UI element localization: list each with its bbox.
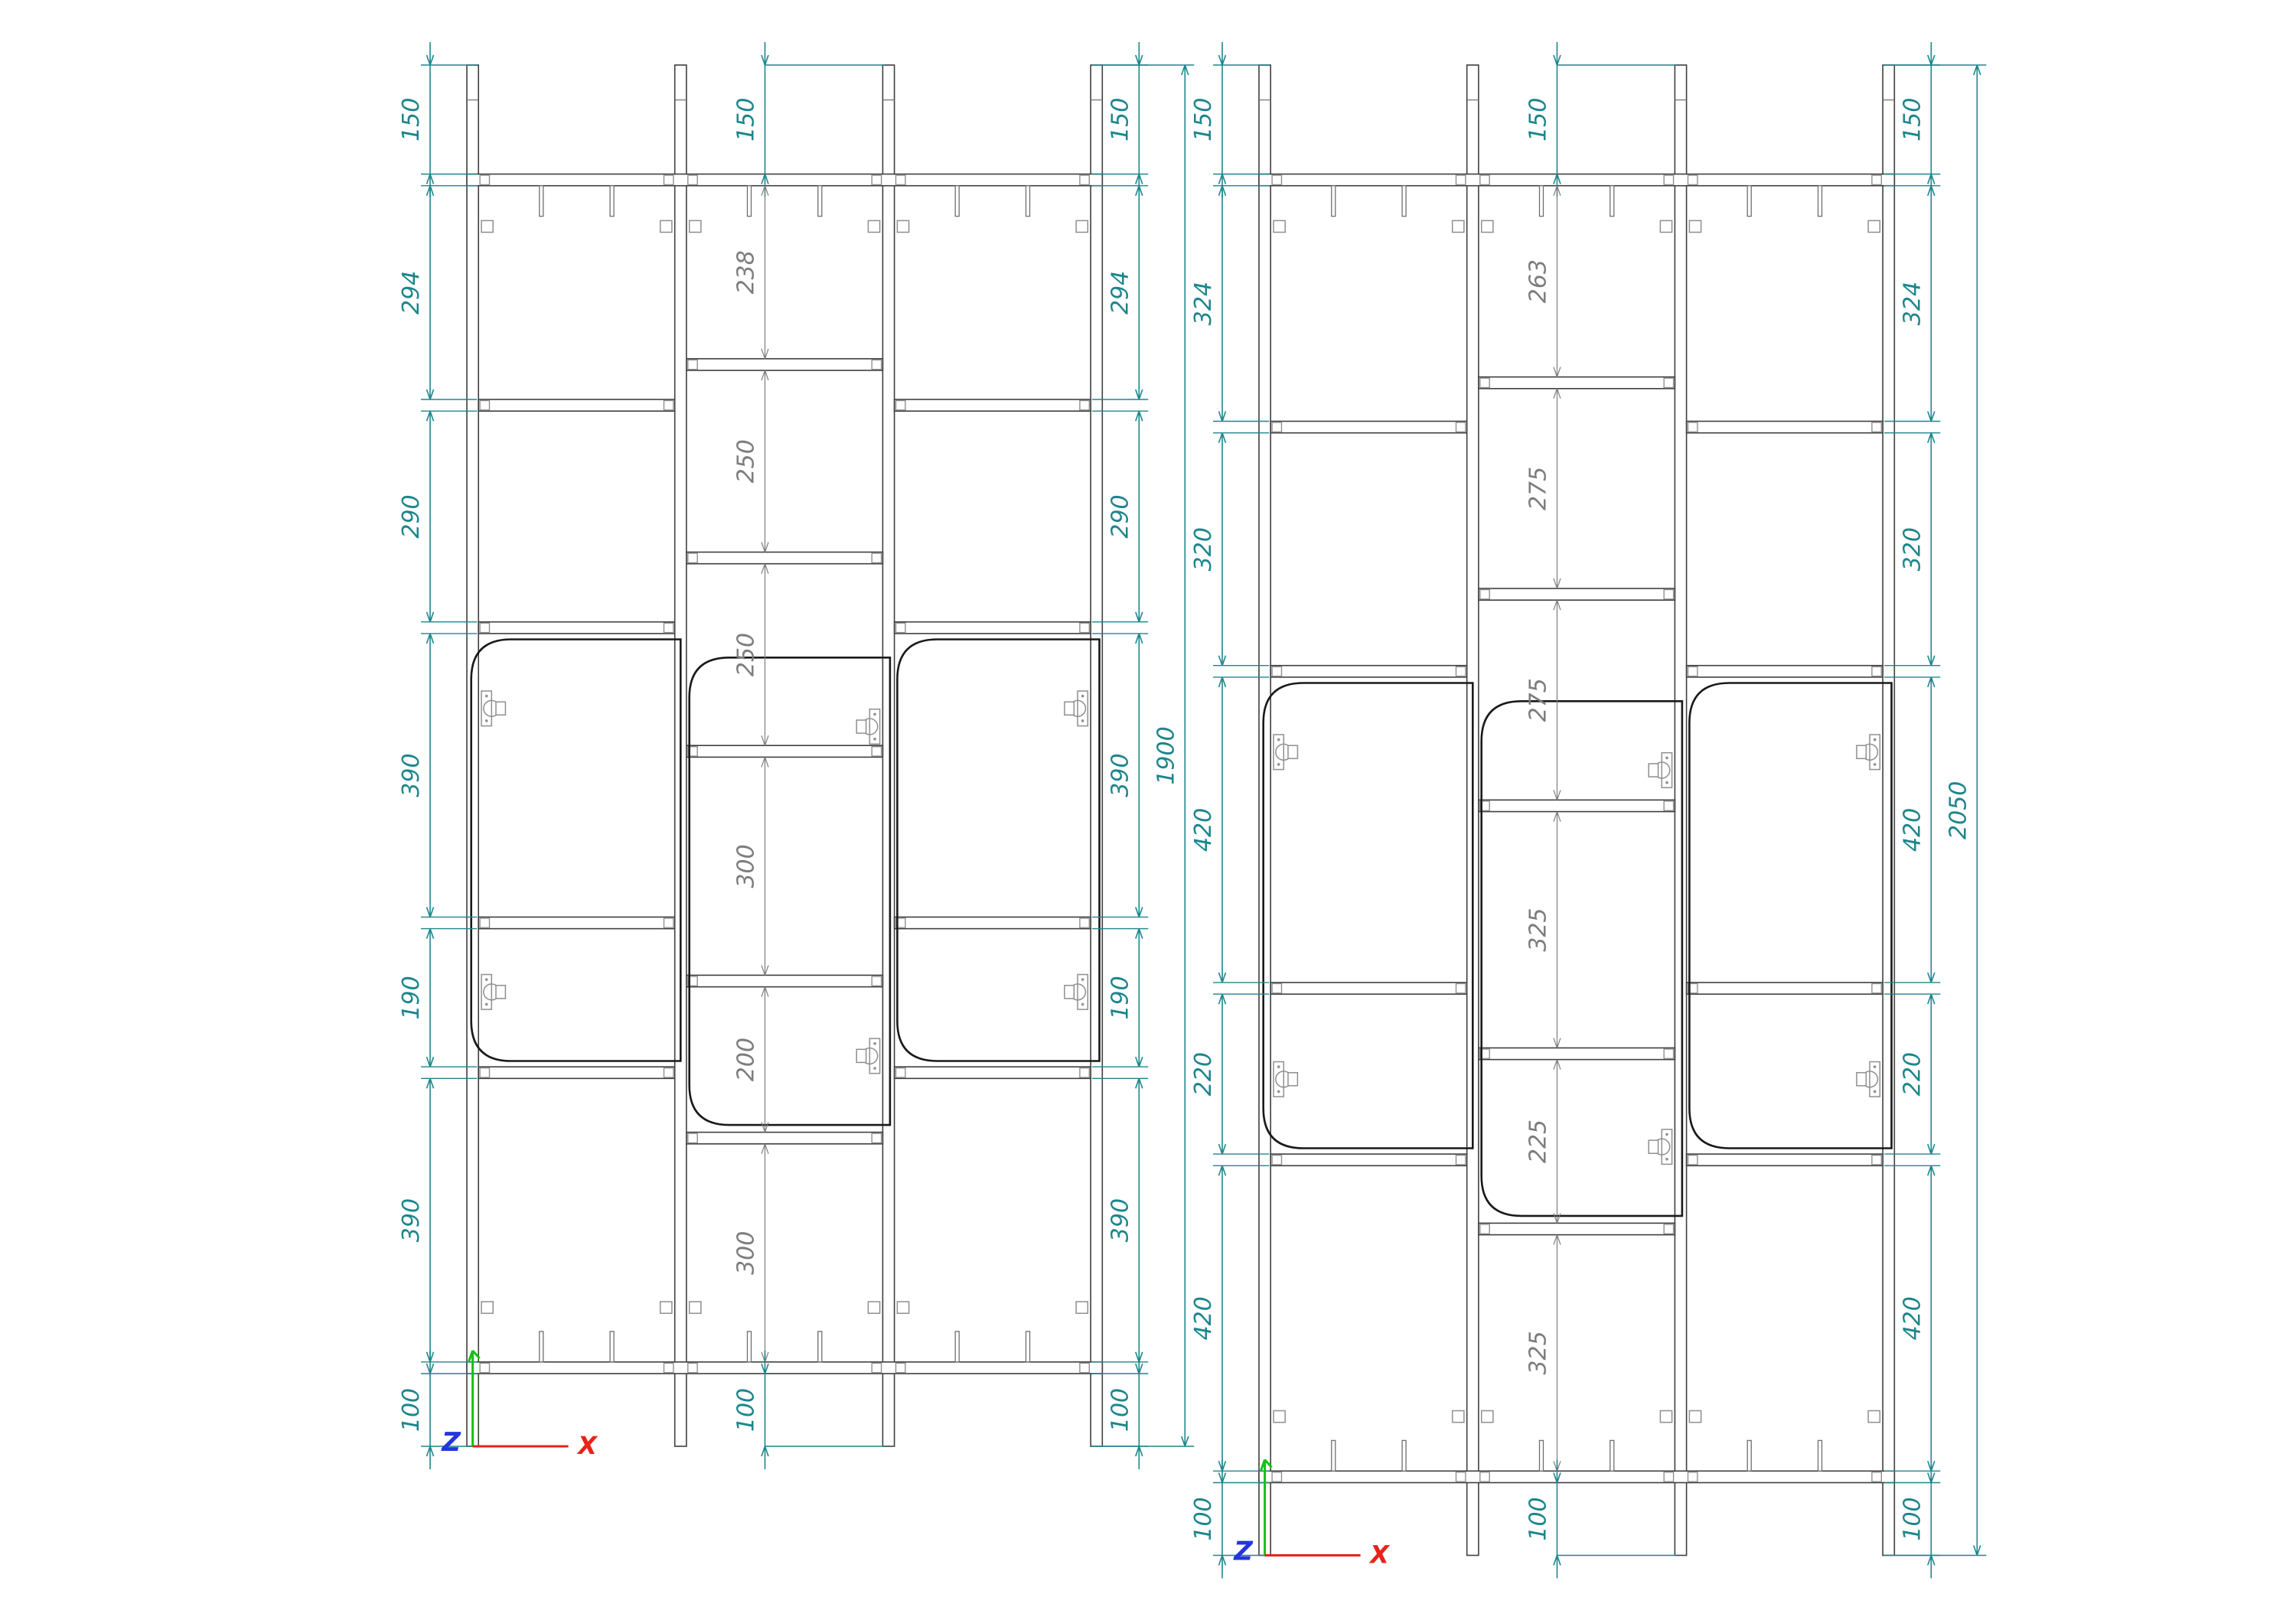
shelf-connector [1664, 1224, 1673, 1234]
shelf-connector [1080, 401, 1089, 410]
arrowhead [762, 987, 765, 997]
shelf-connector [1688, 1156, 1698, 1165]
shelf-connector [688, 175, 697, 184]
dim-label: 190 [398, 976, 425, 1019]
dowel-peg [1747, 1440, 1751, 1471]
shelf-connector [664, 918, 673, 927]
dowel-peg [748, 1332, 752, 1362]
shelf-connector [1456, 1472, 1466, 1482]
dim-label: 220 [1899, 1052, 1926, 1096]
hinge-screw-icon [485, 978, 488, 981]
shelf-connector [1872, 175, 1881, 184]
shelf-connector [1664, 801, 1673, 810]
arrowhead [1557, 600, 1561, 610]
dim-label: 220 [1190, 1052, 1217, 1096]
shelf-connector [480, 1363, 489, 1372]
shelf-connector [1664, 378, 1673, 387]
dowel-peg [1747, 186, 1751, 217]
shelf-connector [1080, 1363, 1089, 1372]
drawing-canvas: 1502942903901903901001502942903901903901… [0, 0, 2296, 1607]
bottom-shelf [1259, 1471, 1894, 1482]
top-shelf [1259, 174, 1894, 186]
hinge-screw-icon [1081, 1003, 1084, 1006]
dowel-peg [1332, 186, 1336, 217]
hinge-screw-icon [1665, 1158, 1668, 1161]
hinge-screw-icon [1277, 1090, 1280, 1094]
hinge-screw-icon [873, 713, 876, 716]
dim-label: 420 [1899, 1296, 1926, 1340]
cam-fitting [1274, 1411, 1285, 1423]
center-bay-shelf [687, 1133, 883, 1144]
top-shelf [467, 174, 1102, 186]
shelf-connector [664, 1068, 673, 1077]
hinge-arm-icon [1288, 1073, 1297, 1086]
dim-label: 100 [398, 1388, 425, 1432]
upright [1675, 65, 1686, 1556]
outer-bay-shelf [478, 917, 675, 928]
dowel-peg [748, 186, 752, 217]
axis-z-label: Z [1233, 1537, 1254, 1567]
shelf-connector [480, 623, 489, 632]
dim-label: 238 [733, 250, 760, 294]
arrowhead [1554, 790, 1557, 800]
dim-label: 275 [1525, 678, 1552, 722]
dowel-peg [818, 1332, 822, 1362]
shelf-connector [872, 976, 881, 986]
arrowhead [765, 1144, 769, 1154]
shelf-connector [1688, 667, 1698, 676]
cam-fitting [897, 1302, 908, 1313]
hinge-screw-icon [1874, 1065, 1877, 1068]
dim-label: 100 [1107, 1388, 1133, 1432]
dim-label: 294 [1107, 271, 1133, 315]
dowel-peg [1402, 1440, 1406, 1471]
arrowhead [765, 987, 769, 997]
center-bay-shelf [1479, 588, 1675, 600]
cam-fitting [1689, 220, 1701, 232]
dowel-peg [610, 186, 614, 217]
hinge-arm-icon [1857, 745, 1866, 758]
cam-fitting [1660, 1411, 1671, 1423]
arrowhead [1557, 1213, 1561, 1223]
dim-label: 200 [733, 1038, 760, 1081]
dim-label: 100 [1190, 1497, 1217, 1540]
shelf-connector [688, 360, 697, 369]
arrowhead [1554, 1213, 1557, 1223]
dowel-peg [610, 1332, 614, 1362]
axis-z-label: Z [441, 1427, 461, 1458]
outer-bay-shelf [1270, 983, 1467, 994]
hinge-arm-icon [496, 986, 505, 999]
hinge-arm-icon [1649, 764, 1658, 777]
dowel-peg [1332, 1440, 1336, 1471]
arrowhead [1557, 1235, 1561, 1245]
dim-label: 225 [1525, 1120, 1552, 1163]
cabinet-view-1900: 1502942903901903901001502942903901903901… [398, 42, 1194, 1469]
bottom-shelf [467, 1362, 1102, 1374]
dowel-peg [540, 1332, 543, 1362]
shelf-connector [480, 918, 489, 927]
center-bay-shelf [1479, 1223, 1675, 1234]
dowel-peg [1818, 186, 1822, 217]
arrowhead [1554, 812, 1557, 822]
hinge-screw-icon [873, 1067, 876, 1070]
shelf-connector [896, 401, 905, 410]
dowel-peg [955, 1332, 959, 1362]
shelf-connector [1872, 983, 1881, 993]
dim-label: 263 [1525, 259, 1552, 303]
dim-label: 300 [733, 1231, 760, 1275]
cam-fitting [1076, 1302, 1088, 1313]
dim-label: 320 [1190, 527, 1217, 571]
outer-bay-shelf [1270, 1154, 1467, 1165]
outer-bay-shelf [478, 399, 675, 411]
arrowhead [765, 757, 769, 767]
arrowhead [762, 735, 765, 745]
hinge-screw-icon [1665, 757, 1668, 760]
center-bay-shelf [687, 359, 883, 370]
arrowhead [1554, 389, 1557, 399]
shelf-connector [1664, 590, 1673, 599]
shelf-connector [1080, 175, 1089, 184]
cam-fitting [1453, 1411, 1464, 1423]
axis-x-label: X [576, 1431, 598, 1460]
dim-label: 300 [733, 844, 760, 888]
cam-fitting [690, 1302, 701, 1313]
dowel-peg [1026, 186, 1030, 217]
dim-label: 150 [1190, 98, 1217, 142]
hinge-arm-icon [1288, 745, 1297, 758]
hinge-arm-icon [496, 702, 505, 715]
arrowhead [1554, 1235, 1557, 1245]
outer-bay-shelf [1687, 983, 1883, 994]
hinge-screw-icon [1665, 781, 1668, 784]
dowel-peg [1818, 1440, 1822, 1471]
shelf-connector [1272, 175, 1281, 184]
shelf-connector [664, 1363, 673, 1372]
upright [467, 65, 478, 1446]
arrowhead [1557, 812, 1561, 822]
shelf-connector [1480, 175, 1489, 184]
dim-label: 390 [1107, 753, 1133, 797]
arrowhead [1554, 600, 1557, 610]
center-bay-shelf [1479, 800, 1675, 811]
shelf-connector [1688, 1472, 1698, 1482]
outer-bay-shelf [478, 1067, 675, 1078]
hinge-screw-icon [1081, 978, 1084, 981]
cad-drawing-stage: 1502942903901903901001502942903901903901… [0, 0, 2296, 1607]
cam-fitting [1868, 220, 1880, 232]
outer-bay-shelf [895, 622, 1091, 634]
shelf-connector [1872, 667, 1881, 676]
arrowhead [762, 370, 765, 380]
shelf-connector [664, 175, 673, 184]
shelf-connector [664, 401, 673, 410]
shelf-connector [1664, 1472, 1673, 1482]
shelf-connector [688, 553, 697, 562]
arrowhead [1557, 1060, 1561, 1070]
hinge-screw-icon [485, 1003, 488, 1006]
arrowhead [1557, 579, 1561, 588]
dowel-peg [818, 186, 822, 217]
cam-fitting [1660, 220, 1671, 232]
arrowhead [765, 965, 769, 975]
dim-label: 324 [1190, 282, 1217, 325]
shelf-connector [1456, 983, 1466, 993]
dim-label: 250 [733, 439, 760, 483]
hinge-screw-icon [1081, 695, 1084, 698]
hinge-arm-icon [1065, 702, 1074, 715]
shelf-connector [1272, 667, 1281, 676]
hinge-screw-icon [1081, 719, 1084, 722]
shelf-connector [1272, 1472, 1281, 1482]
shelf-connector [1456, 1156, 1466, 1165]
hinge-screw-icon [485, 719, 488, 722]
center-bay-shelf [1479, 377, 1675, 389]
door-outline [1482, 701, 1682, 1216]
shelf-connector [1688, 422, 1698, 432]
cam-fitting [481, 1302, 493, 1313]
hinge-screw-icon [485, 695, 488, 698]
dowel-peg [955, 186, 959, 217]
outer-bay-shelf [1270, 422, 1467, 433]
shelf-connector [896, 1068, 905, 1077]
shelf-connector [1080, 1068, 1089, 1077]
outer-bay-shelf [1687, 422, 1883, 433]
dim-label: 390 [398, 1198, 425, 1242]
hinge-arm-icon [1857, 1073, 1866, 1086]
cam-fitting [660, 220, 672, 232]
outer-bay-shelf [895, 917, 1091, 928]
shelf-connector [1080, 918, 1089, 927]
arrowhead [1557, 1038, 1561, 1048]
arrowhead [1554, 1060, 1557, 1070]
dowel-peg [1610, 1440, 1614, 1471]
dim-label: 420 [1899, 808, 1926, 852]
cam-fitting [1453, 220, 1464, 232]
cam-fitting [897, 220, 908, 232]
outer-bay-shelf [1270, 666, 1467, 677]
cam-fitting [868, 220, 879, 232]
shelf-connector [1080, 623, 1089, 632]
cam-fitting [481, 220, 493, 232]
shelf-connector [1688, 175, 1698, 184]
hinge-arm-icon [1649, 1140, 1658, 1153]
arrowhead [1554, 1038, 1557, 1048]
cam-fitting [660, 1302, 672, 1313]
dim-label: 390 [1107, 1198, 1133, 1242]
center-bay-shelf [1479, 1048, 1675, 1059]
dim-label: 150 [398, 98, 425, 142]
outer-bay-shelf [895, 399, 1091, 411]
shelf-connector [688, 1363, 697, 1372]
shelf-connector [480, 1068, 489, 1077]
shelf-connector [664, 623, 673, 632]
shelf-connector [1272, 1156, 1281, 1165]
shelf-connector [1480, 1472, 1489, 1482]
cam-fitting [868, 1302, 879, 1313]
dowel-peg [1026, 1332, 1030, 1362]
shelf-connector [896, 1363, 905, 1372]
arrowhead [762, 1144, 765, 1154]
dowel-peg [1402, 186, 1406, 217]
axis-x-label: X [1368, 1540, 1390, 1570]
dim-label: 390 [398, 753, 425, 797]
outer-bay-shelf [1687, 1154, 1883, 1165]
dim-label: 324 [1899, 282, 1926, 325]
arrowhead [762, 965, 765, 975]
shelf-connector [896, 175, 905, 184]
dowel-peg [1540, 1440, 1544, 1471]
dim-label: 100 [1525, 1497, 1552, 1540]
dim-label: 150 [733, 98, 760, 142]
arrowhead [762, 757, 765, 767]
dim-label: 150 [1107, 98, 1133, 142]
arrowhead [1557, 790, 1561, 800]
arrowhead [765, 370, 769, 380]
cam-fitting [690, 220, 701, 232]
dim-label: 320 [1899, 527, 1926, 571]
cam-fitting [1076, 220, 1088, 232]
arrowhead [1554, 367, 1557, 377]
shelf-connector [688, 1133, 697, 1143]
outer-bay-shelf [478, 622, 675, 634]
upright [1091, 65, 1102, 1446]
shelf-connector [1272, 422, 1281, 432]
overall-dim-label: 1900 [1153, 726, 1179, 784]
cam-fitting [1482, 220, 1493, 232]
shelf-connector [896, 623, 905, 632]
arrowhead [765, 1123, 769, 1133]
hinge-screw-icon [1874, 763, 1877, 766]
outer-bay-shelf [1687, 666, 1883, 677]
shelf-connector [872, 175, 881, 184]
hinge-screw-icon [873, 738, 876, 741]
hinge-arm-icon [856, 1049, 866, 1062]
center-bay-shelf [687, 975, 883, 986]
dowel-peg [1540, 186, 1544, 217]
shelf-connector [480, 401, 489, 410]
hinge-screw-icon [873, 1042, 876, 1045]
shelf-connector [480, 175, 489, 184]
shelf-connector [1480, 378, 1489, 387]
dim-label: 275 [1525, 467, 1552, 510]
dim-label: 150 [1899, 98, 1926, 142]
dim-label: 250 [733, 633, 760, 676]
shelf-connector [1456, 667, 1466, 676]
arrowhead [762, 543, 765, 553]
arrowhead [765, 543, 769, 553]
hinge-screw-icon [1277, 738, 1280, 742]
arrowhead [765, 564, 769, 574]
shelf-connector [1872, 422, 1881, 432]
hinge-screw-icon [1665, 1133, 1668, 1136]
dim-label: 420 [1190, 808, 1217, 852]
cam-fitting [1868, 1411, 1880, 1423]
dim-label: 420 [1190, 1296, 1217, 1340]
dim-label: 100 [733, 1388, 760, 1432]
hinge-arm-icon [856, 720, 866, 733]
cam-fitting [1689, 1411, 1701, 1423]
hinge-screw-icon [1874, 738, 1877, 742]
center-bay-shelf [687, 745, 883, 757]
arrowhead [1554, 579, 1557, 588]
cam-fitting [1274, 220, 1285, 232]
arrowhead [1557, 367, 1561, 377]
shelf-connector [1664, 175, 1673, 184]
dim-label: 325 [1525, 908, 1552, 951]
arrowhead [765, 735, 769, 745]
shelf-connector [872, 747, 881, 756]
arrowhead [762, 564, 765, 574]
hinge-arm-icon [1065, 986, 1074, 999]
dim-label: 290 [1107, 494, 1133, 538]
shelf-connector [872, 360, 881, 369]
cabinet-view-2050: 1503243204202204201001503243204202204201… [1190, 42, 1986, 1579]
arrowhead [765, 349, 769, 359]
shelf-connector [872, 553, 881, 562]
shelf-connector [1272, 983, 1281, 993]
shelf-connector [872, 1133, 881, 1143]
dowel-peg [540, 186, 543, 217]
dim-label: 150 [1525, 98, 1552, 142]
shelf-connector [1872, 1472, 1881, 1482]
arrowhead [762, 1123, 765, 1133]
hinge-screw-icon [1874, 1090, 1877, 1094]
dowel-peg [1610, 186, 1614, 217]
shelf-connector [1456, 422, 1466, 432]
hinge-screw-icon [1277, 763, 1280, 766]
shelf-connector [1456, 175, 1466, 184]
cam-fitting [1482, 1411, 1493, 1423]
center-bay-shelf [687, 553, 883, 564]
hinge-screw-icon [1277, 1065, 1280, 1068]
shelf-connector [1480, 590, 1489, 599]
dim-label: 294 [398, 271, 425, 315]
arrowhead [762, 349, 765, 359]
upright [882, 65, 894, 1446]
dim-label: 325 [1525, 1331, 1552, 1374]
overall-dim-label: 2050 [1945, 781, 1971, 839]
shelf-connector [1480, 1224, 1489, 1234]
upright [1883, 65, 1894, 1556]
upright [1259, 65, 1270, 1556]
dim-label: 190 [1107, 976, 1133, 1019]
dim-label: 290 [398, 494, 425, 538]
arrowhead [1557, 389, 1561, 399]
shelf-connector [1664, 1049, 1673, 1058]
shelf-connector [1872, 1156, 1881, 1165]
outer-bay-shelf [895, 1067, 1091, 1078]
dim-label: 100 [1899, 1497, 1926, 1540]
shelf-connector [872, 1363, 881, 1372]
